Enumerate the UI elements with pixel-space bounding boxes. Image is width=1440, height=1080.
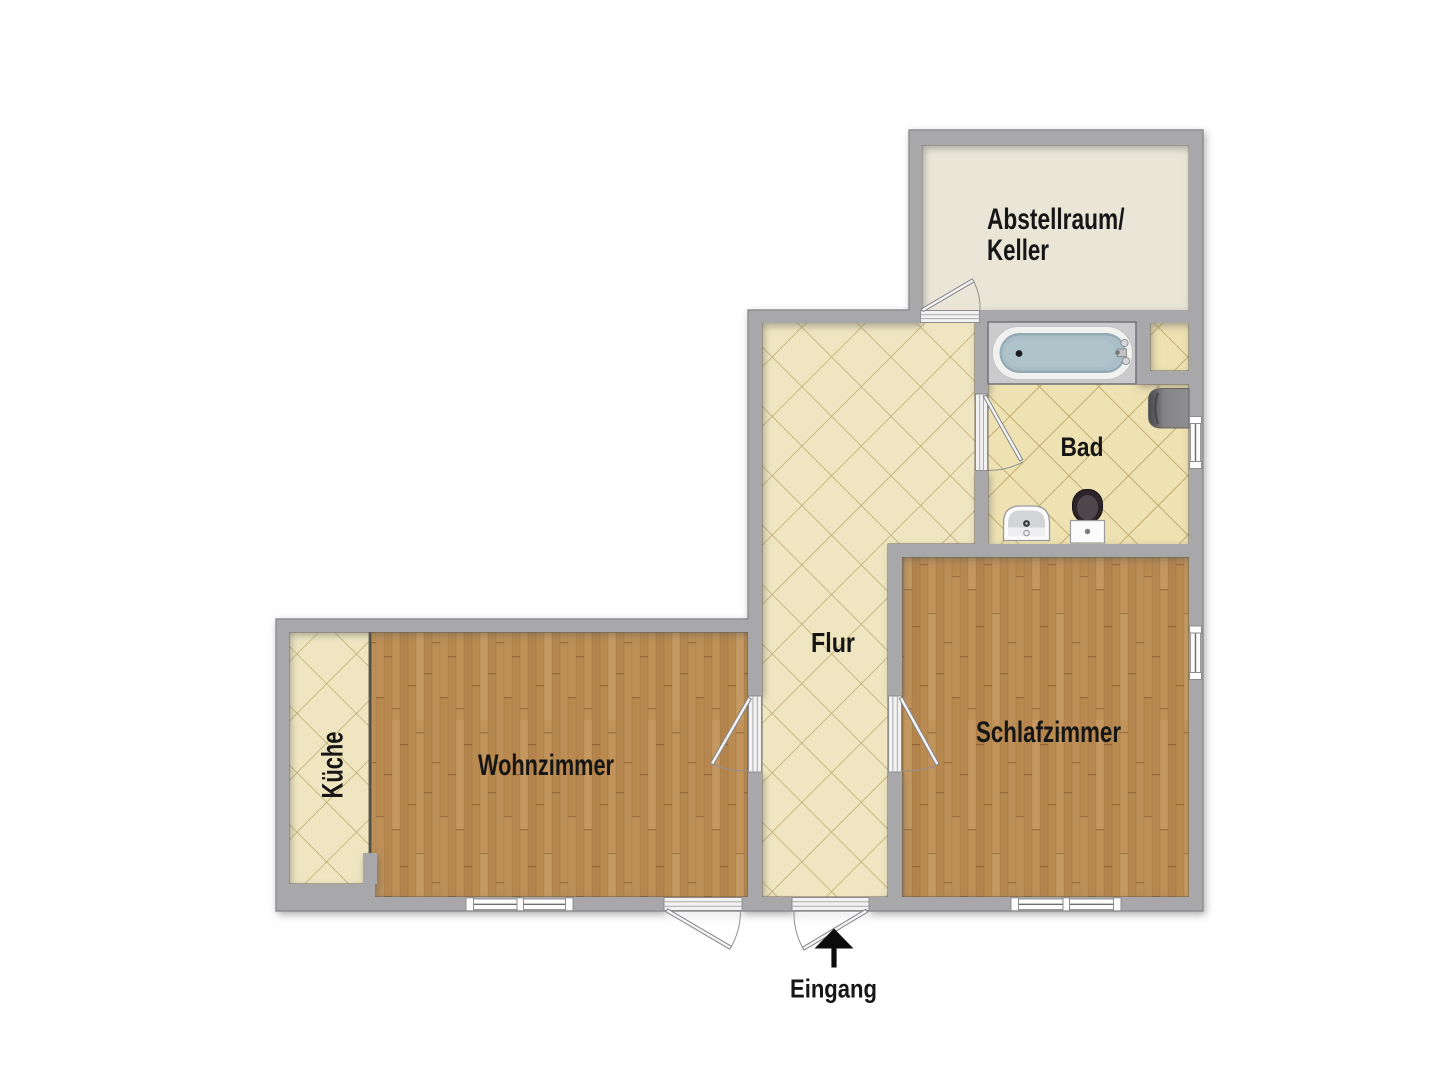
svg-text:Eingang: Eingang	[790, 974, 877, 1004]
svg-text:Küche: Küche	[317, 732, 350, 799]
svg-text:Bad: Bad	[1061, 432, 1104, 462]
svg-text:Wohnzimmer: Wohnzimmer	[478, 749, 614, 782]
svg-text:Abstellraum/: Abstellraum/	[987, 203, 1125, 236]
svg-text:Flur: Flur	[811, 627, 855, 658]
svg-text:Keller: Keller	[987, 234, 1049, 267]
svg-text:Schlafzimmer: Schlafzimmer	[976, 716, 1121, 749]
